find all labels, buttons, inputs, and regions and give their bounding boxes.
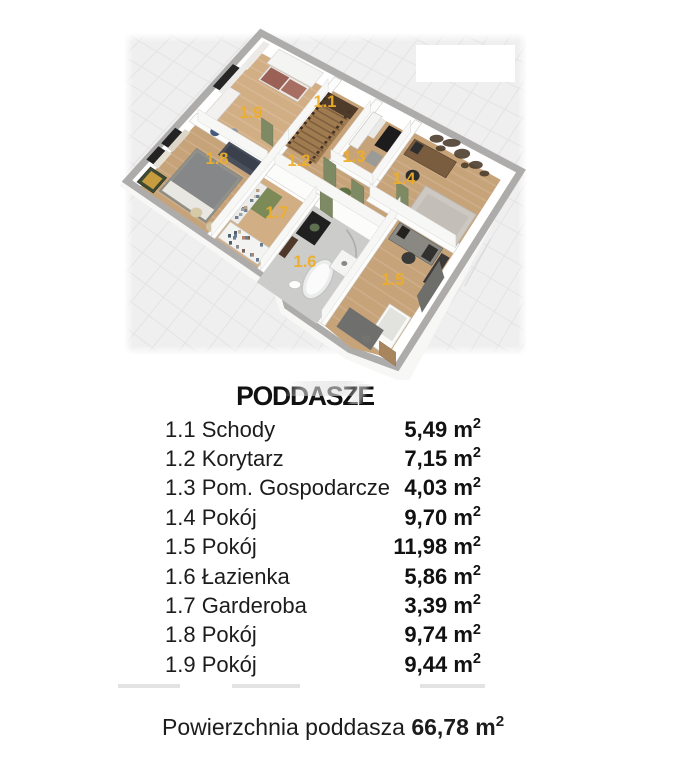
svg-text:1.7: 1.7 [266,204,289,222]
svg-text:1.2: 1.2 [288,152,311,170]
svg-text:1.8: 1.8 [206,150,229,168]
svg-text:1.5: 1.5 [382,271,405,289]
svg-text:1.9: 1.9 [240,104,263,122]
svg-text:1.1: 1.1 [314,93,337,111]
svg-text:1.6: 1.6 [294,253,317,271]
svg-text:1.4: 1.4 [393,170,417,188]
svg-text:1.3: 1.3 [343,148,366,166]
